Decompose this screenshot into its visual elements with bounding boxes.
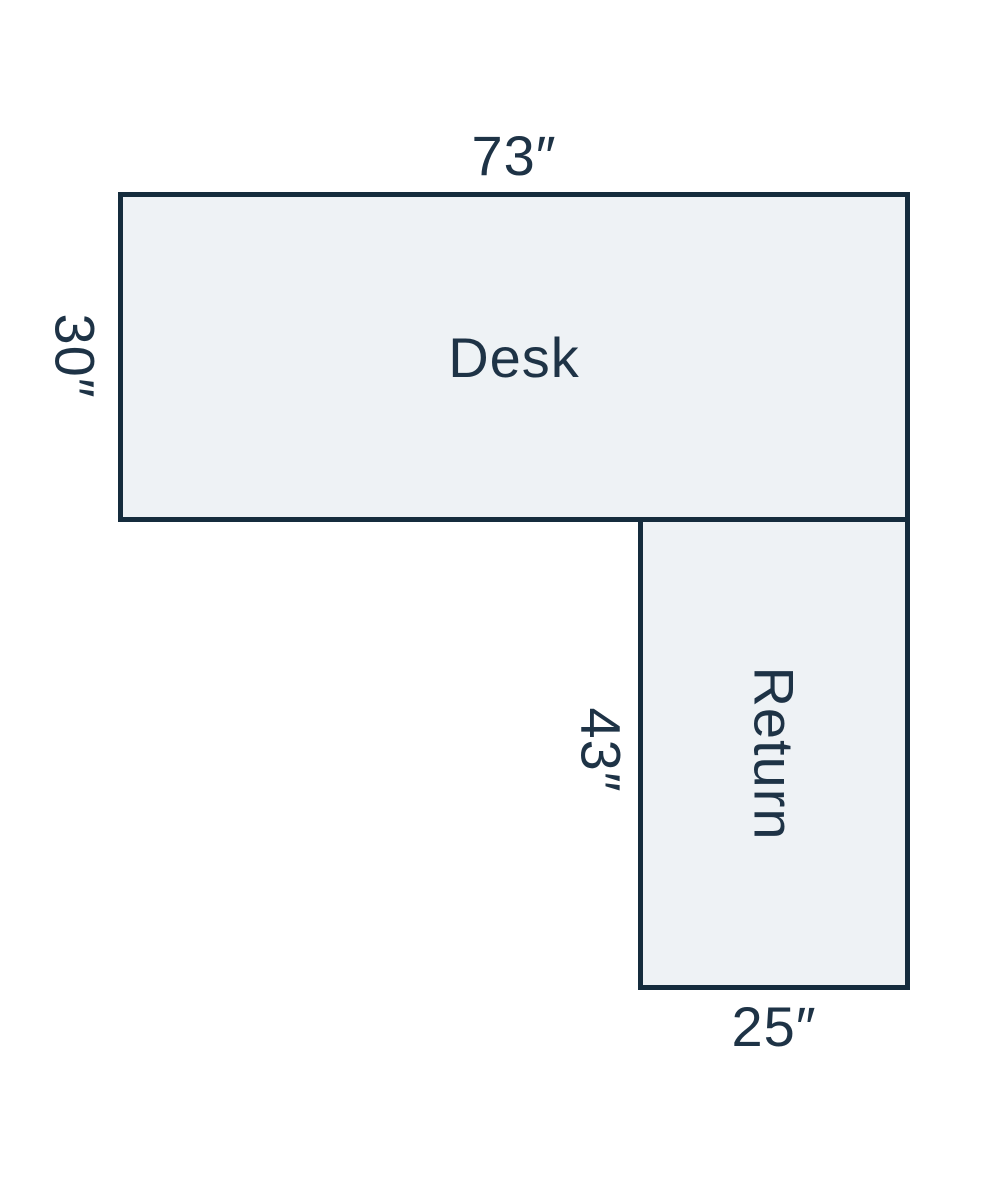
return-shape: Return [638,522,910,990]
return-label: Return [742,666,807,840]
return-length-dimension-label: 43″ [569,707,634,792]
desk-shape: Desk [118,192,910,522]
desk-dimension-diagram: 73″ 30″ Desk 43″ Return 25″ [0,0,1000,1200]
return-width-dimension-label: 25″ [638,997,910,1057]
desk-width-dimension-label: 73″ [118,126,910,186]
desk-label: Desk [448,325,580,390]
desk-depth-dimension-label: 30″ [43,313,108,398]
